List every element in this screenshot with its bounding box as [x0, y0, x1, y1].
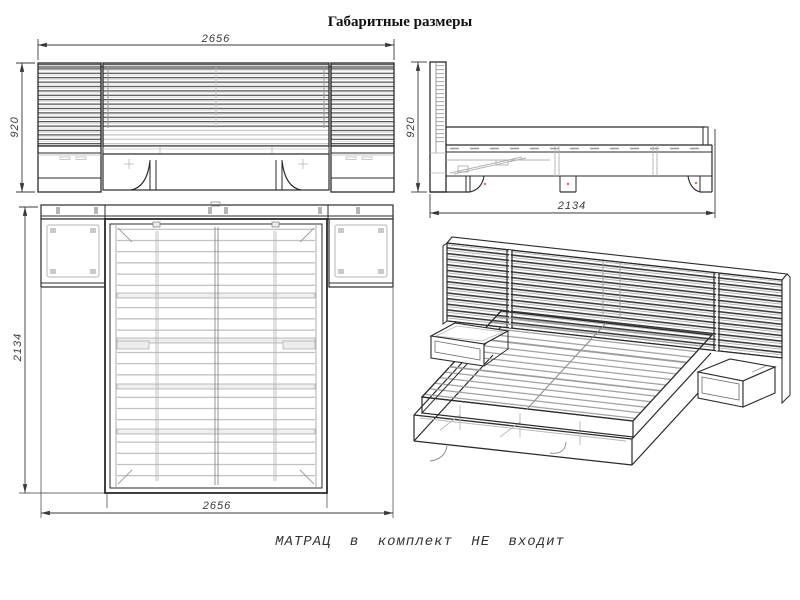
top-left-nightstand	[41, 219, 105, 287]
side-depth-dimension: 2134	[557, 200, 586, 212]
front-height-dimension: 920	[10, 116, 21, 137]
front-view: 2656 920	[10, 33, 410, 203]
top-bed-frame	[105, 219, 327, 493]
front-right-nightstand	[331, 146, 394, 192]
top-depth-dimension: 2134	[12, 333, 24, 362]
page-title: Габаритные размеры	[0, 14, 800, 31]
side-headboard-post	[430, 62, 446, 192]
front-headboard	[38, 63, 394, 146]
side-height-dimension: 920	[405, 116, 417, 137]
top-headboard-band	[41, 202, 393, 219]
side-bed-frame	[430, 127, 712, 192]
front-width-dimension: 2656	[201, 33, 230, 45]
top-right-nightstand	[329, 219, 393, 287]
mattress-note: МАТРАЦ в комплект НЕ входит	[100, 534, 740, 550]
side-legs	[430, 176, 712, 192]
dimension-drawing-sheet: Габаритные размеры 2656 920	[0, 0, 800, 600]
iso-right-nightstand	[698, 359, 775, 407]
side-lift-mechanism	[446, 145, 657, 176]
isometric-view	[400, 225, 800, 495]
top-view: 2134 2656	[10, 195, 410, 530]
side-dimensions	[411, 62, 715, 218]
side-view: 920 2134	[400, 33, 800, 233]
top-width-dimension: 2656	[202, 500, 231, 512]
side-assembly-marks	[484, 182, 697, 185]
front-bed-frame	[103, 146, 329, 190]
front-left-nightstand	[38, 146, 101, 192]
